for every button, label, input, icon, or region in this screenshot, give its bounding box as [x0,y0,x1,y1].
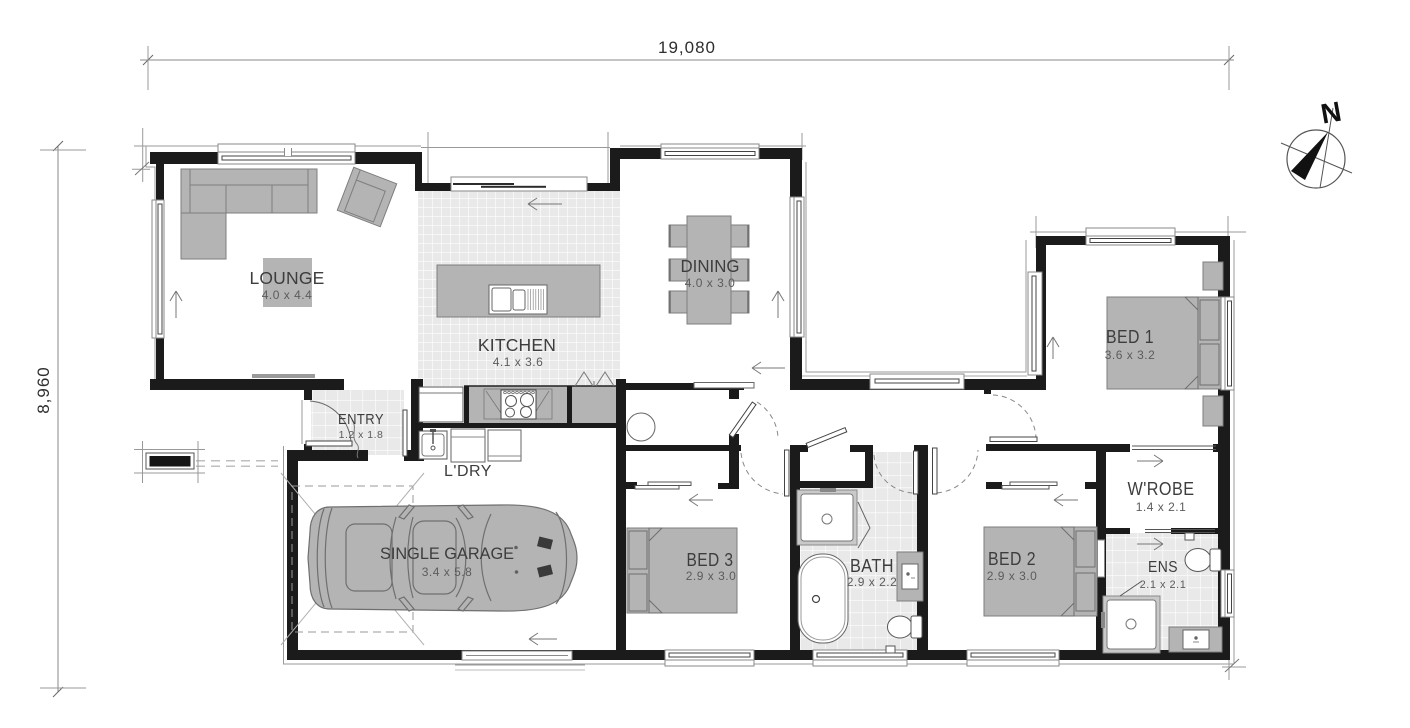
svg-text:1.2 x 1.8: 1.2 x 1.8 [339,429,384,441]
svg-text:4.1 x 3.6: 4.1 x 3.6 [493,355,544,369]
svg-text:ENTRY: ENTRY [338,411,384,428]
svg-text:3.4 x 5.8: 3.4 x 5.8 [422,565,473,579]
svg-text:2.9 x 3.0: 2.9 x 3.0 [686,569,737,583]
svg-text:19,080: 19,080 [658,38,716,57]
svg-text:1.4 x 2.1: 1.4 x 2.1 [1136,500,1187,514]
svg-text:KITCHEN: KITCHEN [478,335,556,355]
svg-text:3.6 x 3.2: 3.6 x 3.2 [1105,348,1156,362]
svg-text:ENS: ENS [1148,559,1178,576]
svg-text:BED 2: BED 2 [988,549,1036,569]
svg-text:DINING: DINING [681,256,740,276]
svg-text:2.9 x 2.2: 2.9 x 2.2 [847,575,898,589]
svg-text:LOUNGE: LOUNGE [249,268,324,288]
svg-text:2.9 x 3.0: 2.9 x 3.0 [987,569,1038,583]
svg-text:2.1 x 2.1: 2.1 x 2.1 [1140,579,1187,591]
svg-text:4.0 x 4.4: 4.0 x 4.4 [262,288,313,302]
svg-text:BATH: BATH [850,556,894,576]
svg-text:L'DRY: L'DRY [444,463,492,480]
svg-text:W'ROBE: W'ROBE [1128,479,1195,499]
svg-text:8,960: 8,960 [34,366,53,414]
svg-text:BED 1: BED 1 [1106,327,1154,347]
svg-text:BED 3: BED 3 [687,550,734,570]
svg-text:SINGLE GARAGE: SINGLE GARAGE [380,544,514,563]
svg-text:4.0 x 3.0: 4.0 x 3.0 [685,276,736,290]
